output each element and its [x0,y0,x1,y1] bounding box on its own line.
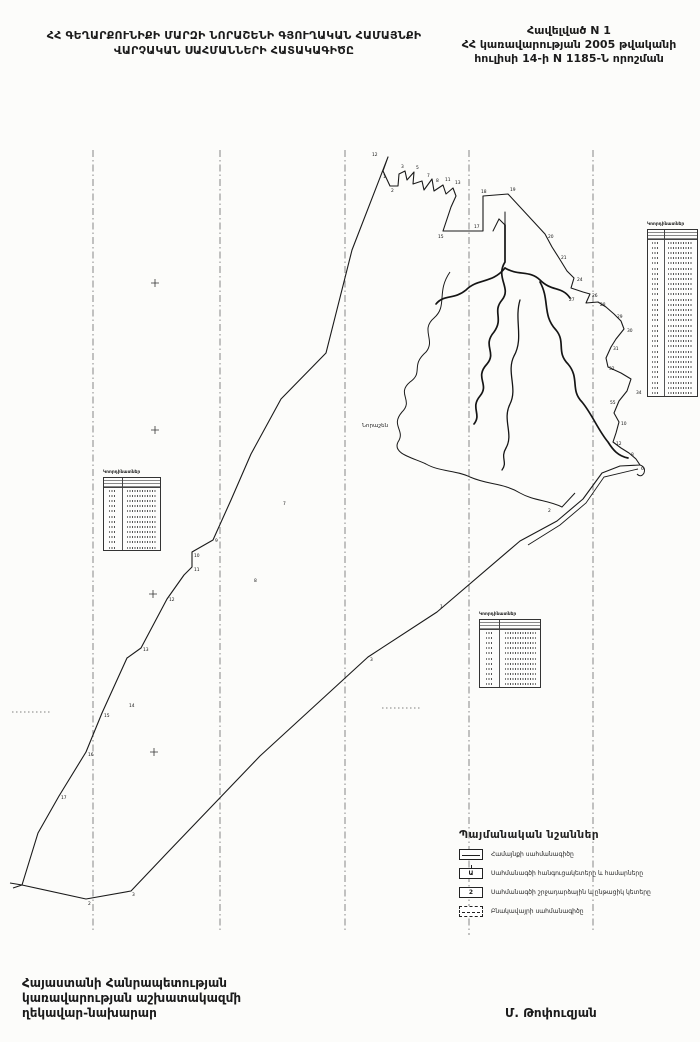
legend-item: Համայնքի սահմանագիծը [459,849,694,860]
legend-item: ԱՍահմանագծի հանգուցակետերը և համարները [459,868,694,879]
signature-block-left: Հայաստանի Հանրապետության կառավարության ա… [22,976,241,1021]
svg-text:7: 7 [283,501,286,507]
legend-item-label: Համայնքի սահմանագիծը [491,851,574,858]
legend-item-label: Սահմանագծի հանգուցակետերը և համարները [491,870,643,877]
legend-item: 2Սահմանագծի շրջադարձային և ընթացիկ կետեր… [459,887,694,898]
svg-text:13: 13 [143,647,149,653]
road-double-line [528,469,638,545]
svg-text:3: 3 [401,164,404,170]
svg-text:24: 24 [577,277,583,283]
svg-text:20: 20 [548,234,554,240]
table-header [104,478,160,488]
legend-item-label: Սահմանագծի շրջադարձային և ընթացիկ կետերը [491,889,651,896]
signature-left-line2: կառավարության աշխատակազմի [22,991,241,1006]
svg-text:5: 5 [416,165,419,171]
table-row [104,545,160,550]
svg-text:31: 31 [613,346,619,352]
svg-text:30: 30 [627,328,633,334]
signature-left-line1: Հայաստանի Հանրապետության [22,976,241,991]
svg-text:11: 11 [445,177,451,183]
svg-text:7: 7 [427,173,430,179]
svg-text:17: 17 [474,224,480,230]
table-rows [480,630,540,687]
dashed-symbol [459,906,483,917]
svg-text:10: 10 [621,421,627,427]
svg-text:13: 13 [455,180,461,186]
svg-text:12: 12 [372,152,378,158]
svg-text:16: 16 [88,752,94,758]
coordinate-table-middle: Կոորդինատներ [479,612,541,688]
svg-text:9: 9 [215,538,218,544]
map-place-label: Նորաշեն [362,423,388,429]
legend-item-label: Բնակավայրի սահմանագիծը [491,908,584,915]
svg-text:6: 6 [641,466,644,472]
table-header [648,230,697,240]
svg-text:1: 1 [383,174,386,180]
table-row [480,682,540,687]
svg-text:17: 17 [61,795,67,801]
svg-text:2: 2 [88,901,91,907]
legend-items: Համայնքի սահմանագիծըԱՍահմանագծի հանգուցա… [459,849,694,917]
svg-text:28: 28 [600,302,606,308]
svg-text:3: 3 [370,657,373,663]
svg-text:10: 10 [194,553,200,559]
legend-item: Բնակավայրի սահմանագիծը [459,906,694,917]
coordinate-table-left: Կոորդինատներ [103,470,161,551]
coordinate-table-title: Կոորդինատներ [647,222,696,227]
svg-text:8: 8 [631,452,634,458]
svg-text:3: 3 [132,892,135,898]
turn-symbol: 2 [459,887,483,898]
svg-text:8: 8 [436,178,439,184]
svg-text:21: 21 [561,255,567,261]
table-header [480,620,540,630]
svg-text:15: 15 [104,713,110,719]
svg-text:11: 11 [194,567,200,573]
svg-text:15: 15 [438,234,444,240]
svg-text:8: 8 [254,578,257,584]
svg-text:32: 32 [609,366,615,372]
settlement-boundary [397,272,575,507]
table-rows [104,488,160,550]
signature-left-line3: ղեկավար-նախարար [22,1006,241,1021]
coordinate-table-right: Կոորդինատներ [647,222,698,397]
svg-text:2: 2 [391,188,394,194]
svg-text:26: 26 [592,293,598,299]
legend: Պայմանական նշաններ Համայնքի սահմանագիծըԱ… [459,829,694,917]
river-network [436,212,628,470]
svg-text:27: 27 [569,297,575,303]
svg-text:19: 19 [510,187,516,193]
legend-title: Պայմանական նշաններ [459,829,694,841]
svg-text:1: 1 [440,604,443,610]
node-symbol: Ա [459,868,483,879]
line-symbol [459,849,483,860]
svg-text:34: 34 [636,390,642,396]
table-rows [648,240,697,396]
svg-text:14: 14 [129,703,135,709]
table-row [648,390,697,395]
svg-text:18: 18 [481,189,487,195]
signature-name: Մ. Թոփուզյան [505,1006,597,1020]
svg-text:12: 12 [616,441,622,447]
coordinate-table-title: Կոորդինատներ [103,470,159,475]
svg-text:12: 12 [169,597,175,603]
svg-text:2: 2 [548,508,551,514]
svg-text:29: 29 [617,314,623,320]
svg-text:55: 55 [610,400,616,406]
dotted-terrain-marks [12,708,420,712]
coordinate-table-title: Կոորդինատներ [479,612,539,617]
